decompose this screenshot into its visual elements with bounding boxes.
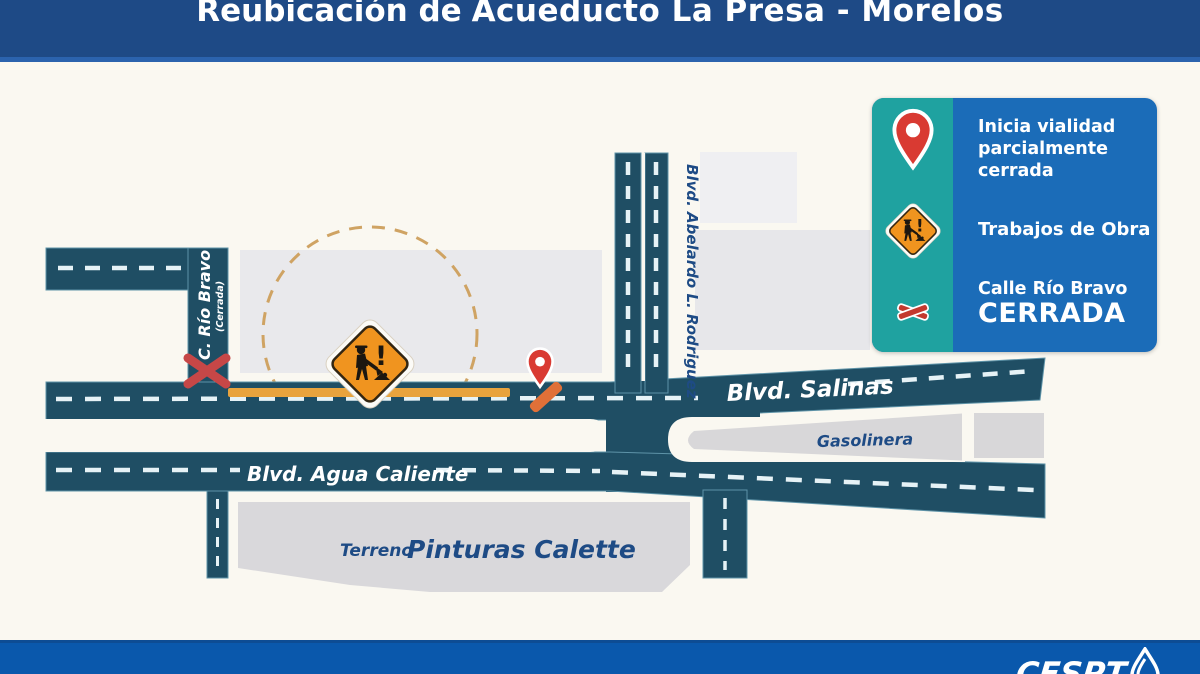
abelardo-median [642,153,646,381]
brand-logo-text: CESPT [1014,656,1128,674]
legend-street-name: Calle Río Bravo [978,278,1127,300]
east-lot [974,413,1044,458]
location-pin-icon [872,108,953,180]
label-blvd-abelardo: Blvd. Abelardo L. Rodriguez [683,164,701,399]
label-terreno-name: Pinturas Calette [407,535,636,564]
legend-panel: Inicia vialidad parcialmente cerrada Tra… [872,98,1157,352]
label-calle-rio-bravo: C. Río Bravo [195,250,214,360]
legend-line: cerrada [978,160,1115,182]
page-title-prefix: Reubicación de [196,0,461,29]
legend-line: Inicia vialidad [978,116,1115,138]
legend-text-roadworks: Trabajos de Obra [978,219,1150,240]
median-island-west [40,419,606,452]
road-closed-x-icon [872,294,953,330]
label-gasolinera: Gasolinera [817,429,914,451]
legend-line: parcialmente [978,138,1115,160]
legend-text-partial-closure: Inicia vialidad parcialmente cerrada [978,116,1115,182]
label-terreno-prefix: Terreno [340,541,413,561]
building-block-east [695,230,870,350]
title-bar: Reubicación de Acueducto La Presa - More… [0,0,1200,62]
page-title-main: Acueducto La Presa - Morelos [472,0,1004,29]
closure-start-pin-icon [527,349,552,387]
roadwork-sign-icon [872,198,953,264]
legend-closed-status: CERRADA [978,300,1127,328]
legend-text-street-closed: Calle Río Bravo CERRADA [978,278,1127,328]
footer-bar: CESPT [0,640,1200,674]
water-drop-icon [1124,647,1170,674]
building-block-northeast [700,152,797,223]
label-blvd-agua-caliente: Blvd. Agua Caliente [247,462,468,486]
page-title: Reubicación de Acueducto La Presa - More… [0,0,1200,28]
label-rio-bravo-status: (Cerrada) [215,281,226,332]
